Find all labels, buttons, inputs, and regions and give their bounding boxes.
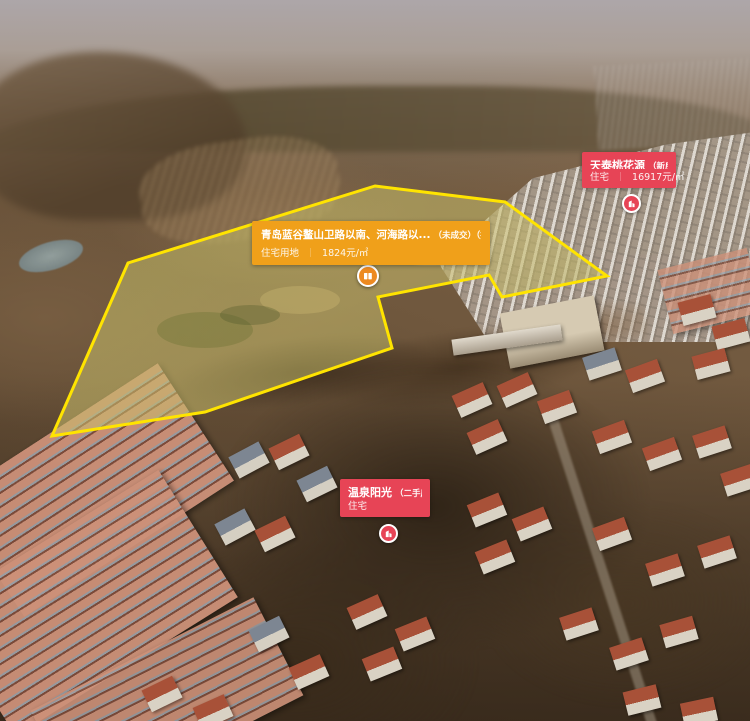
land-card-status: （未成交）（招拍挂） bbox=[433, 229, 481, 241]
map-overlay bbox=[0, 0, 750, 721]
parcel-texture bbox=[220, 305, 280, 325]
listing-category: 住宅 bbox=[348, 498, 367, 512]
land-card-title-row: 青岛蓝谷鳌山卫路以南、河海路以... （未成交）（招拍挂） bbox=[261, 227, 481, 242]
listing-title-row: 温泉阳光 （二手房） bbox=[348, 484, 422, 498]
listing-info-row: 住宅 ｜ 16917元/㎡ bbox=[590, 169, 668, 183]
listing-card-tiantai[interactable]: 天泰桃花源 （新房） 住宅 ｜ 16917元/㎡ bbox=[582, 152, 676, 188]
listing-category: 住宅 bbox=[590, 169, 609, 183]
land-card-category: 住宅用地 bbox=[261, 245, 299, 259]
map-canvas[interactable]: 青岛蓝谷鳌山卫路以南、河海路以... （未成交）（招拍挂） 住宅用地 ｜ 182… bbox=[0, 0, 750, 721]
land-card-title: 青岛蓝谷鳌山卫路以南、河海路以... bbox=[261, 227, 430, 242]
listing-title-row: 天泰桃花源 （新房） bbox=[590, 157, 668, 169]
listing-info-row: 住宅 bbox=[348, 498, 422, 512]
divider: ｜ bbox=[616, 170, 625, 183]
listing-tag: （新房） bbox=[648, 160, 668, 169]
listing-pin-wenquan[interactable] bbox=[379, 524, 398, 543]
listing-pin-tiantai[interactable] bbox=[622, 194, 641, 213]
divider: ｜ bbox=[306, 246, 315, 259]
listing-tag: （二手房） bbox=[395, 487, 422, 498]
listing-card-wenquan[interactable]: 温泉阳光 （二手房） 住宅 bbox=[340, 479, 430, 517]
land-card-info-row: 住宅用地 ｜ 1824元/㎡ bbox=[261, 245, 481, 259]
land-parcel-icon bbox=[363, 271, 373, 281]
land-card-price: 1824元/㎡ bbox=[322, 245, 368, 259]
building-icon bbox=[384, 529, 393, 538]
building-icon bbox=[627, 199, 636, 208]
land-parcel-card[interactable]: 青岛蓝谷鳌山卫路以南、河海路以... （未成交）（招拍挂） 住宅用地 ｜ 182… bbox=[252, 221, 490, 265]
listing-price: 16917元/㎡ bbox=[632, 169, 684, 183]
land-parcel-pin[interactable] bbox=[357, 265, 379, 287]
listing-name: 天泰桃花源 bbox=[590, 157, 645, 169]
listing-name: 温泉阳光 bbox=[348, 484, 392, 498]
